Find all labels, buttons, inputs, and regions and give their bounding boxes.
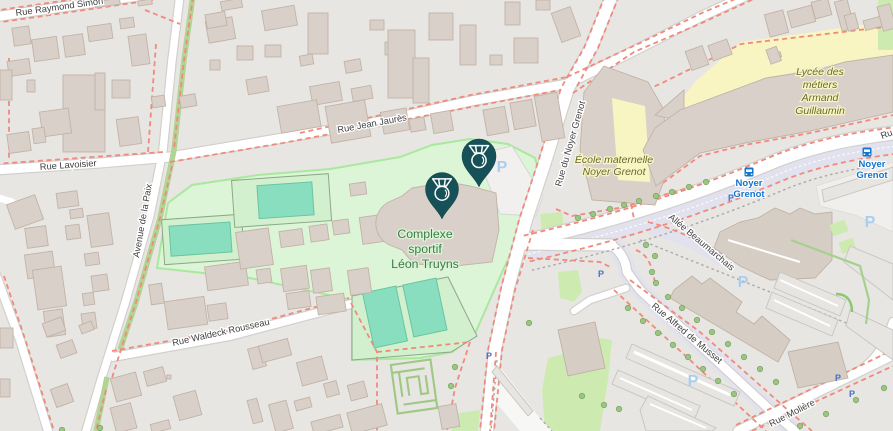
svg-text:P: P xyxy=(486,351,492,361)
svg-text:Guillaumin: Guillaumin xyxy=(795,105,845,117)
svg-text:Noyer: Noyer xyxy=(736,178,763,189)
svg-text:P: P xyxy=(688,373,699,390)
svg-text:Noyer: Noyer xyxy=(859,159,886,170)
svg-text:P: P xyxy=(835,373,841,383)
svg-text:métiers: métiers xyxy=(803,79,838,91)
svg-text:P: P xyxy=(738,274,749,291)
svg-text:Complexe: Complexe xyxy=(397,227,453,241)
svg-text:Grenot: Grenot xyxy=(856,170,888,181)
svg-text:sportif: sportif xyxy=(408,242,442,256)
svg-text:P: P xyxy=(497,159,508,176)
svg-text:Léon Truyns: Léon Truyns xyxy=(391,257,459,271)
svg-text:Grenot: Grenot xyxy=(733,189,765,200)
svg-text:Lycée des: Lycée des xyxy=(796,66,844,78)
svg-text:Noyer Grenot: Noyer Grenot xyxy=(582,166,646,178)
svg-text:P: P xyxy=(865,214,876,231)
svg-text:P: P xyxy=(598,269,604,279)
svg-text:Armand: Armand xyxy=(801,92,840,104)
svg-text:École maternelle: École maternelle xyxy=(575,153,653,166)
svg-text:P: P xyxy=(728,193,734,203)
svg-text:P: P xyxy=(849,389,855,399)
